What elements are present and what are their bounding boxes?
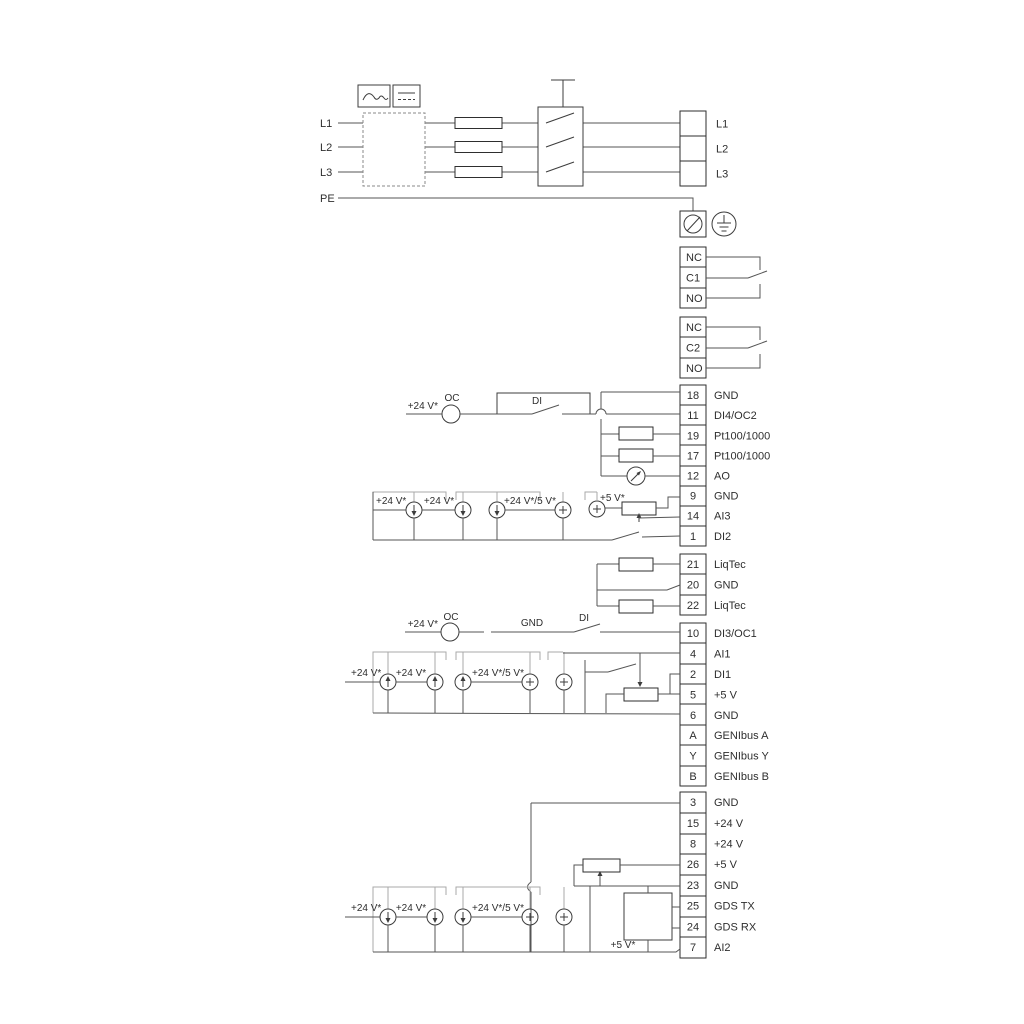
sec-b-oc-label: OC bbox=[444, 612, 459, 623]
row-b-s3-label: +24 V*/5 V* bbox=[472, 668, 524, 679]
wire-hop bbox=[596, 409, 606, 414]
io-top-pin-18: 18 bbox=[687, 390, 699, 402]
relay2-pin-nc: NC bbox=[686, 322, 702, 334]
liqtec-terminal-block: 21 20 22 LiqTec GND LiqTec bbox=[680, 554, 746, 615]
row-a-s4-label: +5 V* bbox=[600, 493, 625, 504]
liqtec-sensor-circuit bbox=[597, 558, 680, 613]
liqtec-pin-21: 21 bbox=[687, 559, 699, 571]
voltage-source-icon bbox=[522, 674, 538, 690]
liqtec-label-3: LiqTec bbox=[714, 600, 746, 612]
relay1-block: NC C1 NO bbox=[680, 247, 767, 308]
mains-out-label-l2: L2 bbox=[716, 144, 728, 156]
relay2-contact-icon bbox=[706, 327, 767, 368]
disconnect-switch-icon bbox=[538, 80, 583, 186]
relay2-pin-c2: C2 bbox=[686, 343, 700, 355]
current-source-down-icon bbox=[427, 909, 443, 925]
sec-a-plus24-label: +24 V* bbox=[408, 401, 438, 412]
current-source-down-icon bbox=[406, 502, 422, 518]
relay1-pin-no: NO bbox=[686, 293, 703, 305]
io-bot-pin-8: 8 bbox=[690, 839, 696, 851]
power-section: L1 L2 L3 PE bbox=[320, 80, 736, 237]
relay2-block: NC C2 NO bbox=[680, 317, 767, 378]
voltage-source-icon bbox=[555, 502, 571, 518]
potentiometer-icon bbox=[574, 859, 680, 886]
mains-label-l3: L3 bbox=[320, 167, 332, 179]
io-mid-label-gnd: GND bbox=[714, 710, 739, 722]
io-top-label-gnd: GND bbox=[714, 390, 739, 402]
sec-b-gnd-label: GND bbox=[521, 618, 543, 629]
row-c-s1-label: +24 V* bbox=[351, 903, 381, 914]
io-mid-pin-a: A bbox=[689, 730, 697, 742]
io-bot-label-gnd: GND bbox=[714, 797, 739, 809]
wiring-diagram: L1 L2 L3 PE bbox=[0, 0, 1024, 1024]
io-bot-pin-7: 7 bbox=[690, 942, 696, 954]
io-top-label-pt100a: Pt100/1000 bbox=[714, 431, 770, 443]
rcd-pulse-symbol-icon bbox=[358, 85, 390, 107]
mains-label-l1: L1 bbox=[320, 118, 332, 130]
relay2-pin-no: NO bbox=[686, 363, 703, 375]
mains-label-l2: L2 bbox=[320, 142, 332, 154]
io-top-pin-11: 11 bbox=[687, 410, 698, 422]
io-bot-label-24v-a: +24 V bbox=[714, 818, 744, 830]
io-top-terminal-block: 18 11 19 17 12 9 14 1 GND DI4/OC2 Pt100/… bbox=[680, 385, 770, 546]
fuse-icon bbox=[455, 118, 502, 178]
potentiometer-icon bbox=[606, 674, 680, 713]
io-top-label-di2: DI2 bbox=[714, 531, 731, 543]
sec-b-di-label: DI bbox=[579, 613, 589, 624]
io-top-pin-17: 17 bbox=[687, 451, 699, 463]
current-source-down-icon bbox=[380, 909, 396, 925]
io-mid-label-di1: DI1 bbox=[714, 669, 731, 681]
io-bot-pin-23: 23 bbox=[687, 880, 699, 892]
mains-wires bbox=[338, 123, 693, 211]
voltage-source-icon bbox=[556, 909, 572, 925]
io-mid-pin-6: 6 bbox=[690, 710, 696, 722]
relay1-pin-c1: C1 bbox=[686, 273, 700, 285]
current-source-down-icon bbox=[489, 502, 505, 518]
mains-label-pe: PE bbox=[320, 193, 335, 205]
row-c-s2-label: +24 V* bbox=[396, 903, 426, 914]
voltage-source-icon bbox=[556, 674, 572, 690]
supply-option-row-a: +24 V* +24 V* +24 V*/5 V* +5 V* bbox=[373, 492, 680, 540]
rcd-enclosure bbox=[363, 113, 425, 186]
io-top-label-ai3: AI3 bbox=[714, 511, 731, 523]
row-a-s1-label: +24 V* bbox=[376, 496, 406, 507]
io-bot-pin-15: 15 bbox=[687, 818, 699, 830]
liqtec-pin-20: 20 bbox=[687, 580, 699, 592]
liqtec-pin-22: 22 bbox=[687, 600, 699, 612]
voltage-source-icon bbox=[522, 909, 538, 925]
io-top-pin-1: 1 bbox=[690, 531, 696, 543]
io-top-pin-19: 19 bbox=[687, 431, 699, 443]
io-top-label-pt100b: Pt100/1000 bbox=[714, 451, 770, 463]
switch-blade-icon bbox=[574, 624, 600, 632]
row-c-s4-label: +5 V* bbox=[611, 940, 636, 951]
io-top-label-gnd2: GND bbox=[714, 491, 739, 503]
io-top-pin-12: 12 bbox=[687, 471, 699, 483]
io-mid-label-genibus-a: GENIbus A bbox=[714, 730, 769, 742]
liqtec-label-1: LiqTec bbox=[714, 559, 746, 571]
earth-symbol-icon bbox=[712, 212, 736, 236]
mains-out-label-l1: L1 bbox=[716, 119, 728, 131]
io-top-pin-14: 14 bbox=[687, 511, 699, 523]
io-top-label-ao: AO bbox=[714, 471, 730, 483]
row-b-s2-label: +24 V* bbox=[396, 668, 426, 679]
io-mid-pin-2: 2 bbox=[690, 669, 696, 681]
io-bot-pin-26: 26 bbox=[687, 859, 699, 871]
row-b-s1-label: +24 V* bbox=[351, 668, 381, 679]
io-mid-circuit: +24 V* OC GND DI +24 V* +24 V* +24 V*/5 … bbox=[345, 612, 680, 714]
liqtec-label-2: GND bbox=[714, 580, 739, 592]
io-bot-label-gds-tx: GDS TX bbox=[714, 901, 755, 913]
open-collector-icon bbox=[442, 405, 460, 423]
io-bottom-circuit: +5 V* +24 V* +24 V* +24 V*/5 V* bbox=[345, 803, 680, 952]
io-bot-label-gnd2: GND bbox=[714, 880, 739, 892]
row-a-s3-label: +24 V*/5 V* bbox=[504, 496, 556, 507]
io-top-pin-9: 9 bbox=[690, 491, 696, 503]
io-bot-pin-25: 25 bbox=[687, 901, 699, 913]
io-bottom-terminal-block: 3 15 8 26 23 25 24 7 GND +24 V +24 V +5 … bbox=[680, 792, 757, 958]
mains-terminal-block: L1 L2 L3 bbox=[680, 111, 728, 186]
io-mid-label-genibus-b: GENIbus B bbox=[714, 771, 769, 783]
io-mid-pin-4: 4 bbox=[690, 649, 696, 661]
io-bot-pin-3: 3 bbox=[690, 797, 696, 809]
voltage-source-icon bbox=[589, 501, 605, 517]
sec-a-oc-label: OC bbox=[445, 393, 460, 404]
io-mid-label-di3: DI3/OC1 bbox=[714, 628, 757, 640]
io-mid-pin-5: 5 bbox=[690, 690, 696, 702]
io-mid-label-ai1: AI1 bbox=[714, 649, 731, 661]
io-bot-pin-24: 24 bbox=[687, 922, 699, 934]
row-a-s2-label: +24 V* bbox=[424, 496, 454, 507]
supply-option-row-b: +24 V* +24 V* +24 V*/5 V* bbox=[345, 652, 680, 714]
pt100-sensor-icon bbox=[601, 427, 680, 462]
digital-input-switch-icon: DI bbox=[497, 393, 596, 414]
liqtec-sensor-icon bbox=[597, 558, 680, 613]
io-mid-pin-10: 10 bbox=[687, 628, 699, 640]
switch-blade-icon bbox=[608, 664, 636, 672]
open-collector-icon bbox=[441, 623, 459, 641]
io-bot-label-ai2: AI2 bbox=[714, 942, 731, 954]
io-bot-label-24v-b: +24 V bbox=[714, 839, 744, 851]
pe-terminal-icon bbox=[680, 211, 706, 237]
io-top-circuit: +24 V* OC DI bbox=[373, 392, 680, 540]
relay1-pin-nc: NC bbox=[686, 252, 702, 264]
io-bot-label-5v: +5 V bbox=[714, 859, 738, 871]
wiring-diagram-page: L1 L2 L3 PE bbox=[0, 0, 1024, 1024]
current-source-up-icon bbox=[380, 674, 396, 690]
current-source-up-icon bbox=[427, 674, 443, 690]
meter-icon bbox=[601, 467, 680, 485]
io-mid-label-genibus-y: GENIbus Y bbox=[714, 751, 769, 763]
sec-a-di-label: DI bbox=[532, 396, 542, 407]
io-mid-pin-y: Y bbox=[689, 751, 697, 763]
io-bot-label-gds-rx: GDS RX bbox=[714, 922, 757, 934]
io-mid-terminal-block: 10 4 2 5 6 A Y B DI3/OC1 AI1 DI1 +5 V GN… bbox=[680, 623, 769, 786]
sec-b-plus24-label: +24 V* bbox=[408, 619, 438, 630]
rcd-dc-symbol-icon bbox=[393, 85, 420, 107]
relay1-contact-icon bbox=[706, 257, 767, 298]
row-c-s3-label: +24 V*/5 V* bbox=[472, 903, 524, 914]
current-source-up-icon bbox=[455, 674, 471, 690]
io-top-label-di4: DI4/OC2 bbox=[714, 410, 757, 422]
current-source-down-icon bbox=[455, 909, 471, 925]
io-mid-label-5v: +5 V bbox=[714, 690, 738, 702]
current-source-down-icon bbox=[455, 502, 471, 518]
io-mid-pin-b: B bbox=[689, 771, 696, 783]
mains-out-label-l3: L3 bbox=[716, 169, 728, 181]
